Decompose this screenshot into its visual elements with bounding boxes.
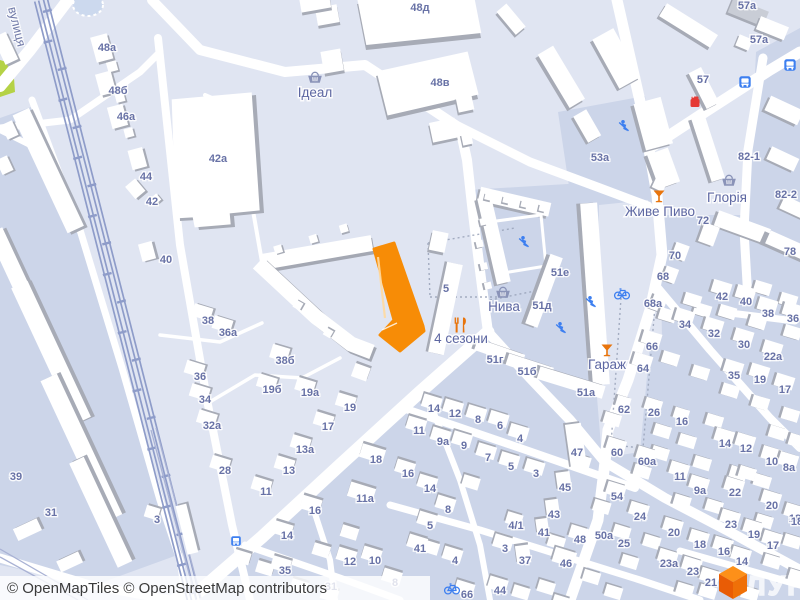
svg-text:6: 6 <box>497 420 503 432</box>
svg-text:4 сезони: 4 сезони <box>434 331 488 346</box>
svg-text:64: 64 <box>637 363 650 375</box>
svg-text:38б: 38б <box>275 355 294 367</box>
svg-text:47: 47 <box>571 447 583 459</box>
svg-text:23: 23 <box>725 519 737 531</box>
svg-text:Живе Пиво: Живе Пиво <box>625 204 695 219</box>
svg-text:11: 11 <box>260 486 272 498</box>
svg-text:48в: 48в <box>431 77 450 89</box>
svg-text:18: 18 <box>370 454 382 466</box>
svg-text:60а: 60а <box>638 456 657 468</box>
svg-text:23: 23 <box>687 566 699 578</box>
svg-text:19: 19 <box>748 529 760 541</box>
svg-text:© OpenMapTiles © OpenStreetMap: © OpenMapTiles © OpenStreetMap contribut… <box>7 580 327 597</box>
svg-text:14: 14 <box>424 483 437 495</box>
svg-text:14: 14 <box>736 556 749 568</box>
svg-text:9а: 9а <box>437 436 450 448</box>
svg-text:12: 12 <box>344 556 356 568</box>
svg-text:51е: 51е <box>551 267 569 279</box>
svg-text:28: 28 <box>219 465 231 477</box>
svg-text:43: 43 <box>548 509 560 521</box>
svg-text:41: 41 <box>538 527 550 539</box>
svg-text:68а: 68а <box>644 298 663 310</box>
svg-text:20: 20 <box>668 527 680 539</box>
svg-text:13а: 13а <box>296 444 315 456</box>
svg-text:8: 8 <box>475 414 481 426</box>
svg-text:51д: 51д <box>532 300 551 312</box>
svg-text:24: 24 <box>634 511 647 523</box>
svg-text:7: 7 <box>485 452 491 464</box>
svg-text:38: 38 <box>202 315 214 327</box>
svg-text:40: 40 <box>740 296 752 308</box>
svg-text:19: 19 <box>344 402 356 414</box>
svg-text:4: 4 <box>517 433 524 445</box>
svg-text:32: 32 <box>708 328 720 340</box>
svg-text:36а: 36а <box>219 327 238 339</box>
svg-text:25: 25 <box>618 538 630 550</box>
svg-text:30: 30 <box>738 339 750 351</box>
svg-text:34: 34 <box>199 394 212 406</box>
svg-text:68: 68 <box>657 271 669 283</box>
svg-text:17: 17 <box>322 421 334 433</box>
svg-text:57: 57 <box>697 74 709 86</box>
svg-text:18: 18 <box>694 539 706 551</box>
svg-text:20: 20 <box>766 500 778 512</box>
svg-text:32а: 32а <box>203 420 222 432</box>
svg-text:4: 4 <box>452 555 459 567</box>
svg-text:12: 12 <box>740 443 752 455</box>
svg-text:3: 3 <box>154 514 160 526</box>
svg-text:5: 5 <box>443 283 449 295</box>
svg-text:16: 16 <box>402 468 414 480</box>
svg-text:19: 19 <box>754 374 766 386</box>
svg-text:45: 45 <box>559 482 571 494</box>
svg-text:3: 3 <box>502 543 508 555</box>
svg-text:16: 16 <box>718 546 730 558</box>
svg-text:11а: 11а <box>356 493 375 505</box>
svg-text:8а: 8а <box>783 462 796 474</box>
svg-text:19б: 19б <box>262 384 281 396</box>
svg-text:82-2: 82-2 <box>775 189 797 201</box>
svg-text:39: 39 <box>10 471 22 483</box>
svg-text:60: 60 <box>611 447 623 459</box>
svg-text:48б: 48б <box>108 85 127 97</box>
svg-text:50а: 50а <box>595 530 614 542</box>
svg-text:17: 17 <box>779 384 791 396</box>
svg-text:46: 46 <box>560 558 572 570</box>
svg-text:10: 10 <box>766 456 778 468</box>
svg-text:13: 13 <box>283 465 295 477</box>
svg-text:34: 34 <box>679 319 692 331</box>
svg-text:Глорія: Глорія <box>707 190 747 205</box>
svg-text:26: 26 <box>648 407 660 419</box>
svg-text:44: 44 <box>494 585 507 597</box>
svg-text:14: 14 <box>719 438 732 450</box>
svg-text:16: 16 <box>676 416 688 428</box>
svg-text:48д: 48д <box>410 2 429 14</box>
svg-text:40: 40 <box>160 254 172 266</box>
svg-text:11: 11 <box>674 471 686 483</box>
svg-text:3: 3 <box>533 468 539 480</box>
svg-text:31: 31 <box>45 507 57 519</box>
svg-text:14: 14 <box>281 530 294 542</box>
svg-text:Гараж: Гараж <box>588 357 626 372</box>
svg-text:10: 10 <box>369 555 381 567</box>
svg-text:22а: 22а <box>764 351 783 363</box>
svg-text:44: 44 <box>140 171 153 183</box>
svg-text:35: 35 <box>279 565 291 577</box>
svg-text:62: 62 <box>618 404 630 416</box>
svg-text:53а: 53а <box>591 152 610 164</box>
svg-text:17: 17 <box>767 540 779 552</box>
svg-text:36: 36 <box>194 371 206 383</box>
svg-text:37: 37 <box>519 555 531 567</box>
svg-text:36: 36 <box>787 313 799 325</box>
svg-text:22: 22 <box>729 487 741 499</box>
svg-text:Нива: Нива <box>488 299 520 314</box>
svg-text:18: 18 <box>791 516 800 528</box>
svg-text:48: 48 <box>574 534 586 546</box>
svg-text:9: 9 <box>461 440 467 452</box>
svg-text:35: 35 <box>728 370 740 382</box>
svg-text:51б: 51б <box>517 366 536 378</box>
svg-text:ЛУН: ЛУН <box>746 570 800 600</box>
svg-text:5: 5 <box>427 520 433 532</box>
svg-text:82-1: 82-1 <box>738 151 760 163</box>
svg-text:42: 42 <box>146 196 158 208</box>
svg-text:19а: 19а <box>301 387 320 399</box>
svg-text:78: 78 <box>784 246 796 258</box>
svg-text:48а: 48а <box>98 42 117 54</box>
svg-text:23а: 23а <box>660 558 679 570</box>
svg-text:9а: 9а <box>694 485 707 497</box>
svg-text:21: 21 <box>705 577 717 589</box>
svg-text:54: 54 <box>611 491 624 503</box>
svg-text:57а: 57а <box>750 34 769 46</box>
svg-text:70: 70 <box>669 250 681 262</box>
svg-text:Ідеал: Ідеал <box>298 85 333 100</box>
svg-text:16: 16 <box>309 505 321 517</box>
svg-text:72: 72 <box>697 215 709 227</box>
svg-text:14: 14 <box>428 403 441 415</box>
svg-text:42: 42 <box>716 291 728 303</box>
svg-text:5: 5 <box>508 461 514 473</box>
svg-text:38: 38 <box>762 308 774 320</box>
svg-text:66: 66 <box>646 341 658 353</box>
svg-text:11: 11 <box>413 425 425 437</box>
svg-text:4/1: 4/1 <box>508 520 523 532</box>
svg-text:51г: 51г <box>487 354 504 366</box>
svg-text:51а: 51а <box>577 387 596 399</box>
svg-text:42а: 42а <box>209 153 228 165</box>
svg-text:12: 12 <box>449 408 461 420</box>
svg-text:41: 41 <box>414 543 426 555</box>
svg-text:8: 8 <box>445 504 451 516</box>
svg-text:57а: 57а <box>738 0 757 12</box>
svg-text:66: 66 <box>461 589 473 600</box>
svg-text:46а: 46а <box>117 111 136 123</box>
